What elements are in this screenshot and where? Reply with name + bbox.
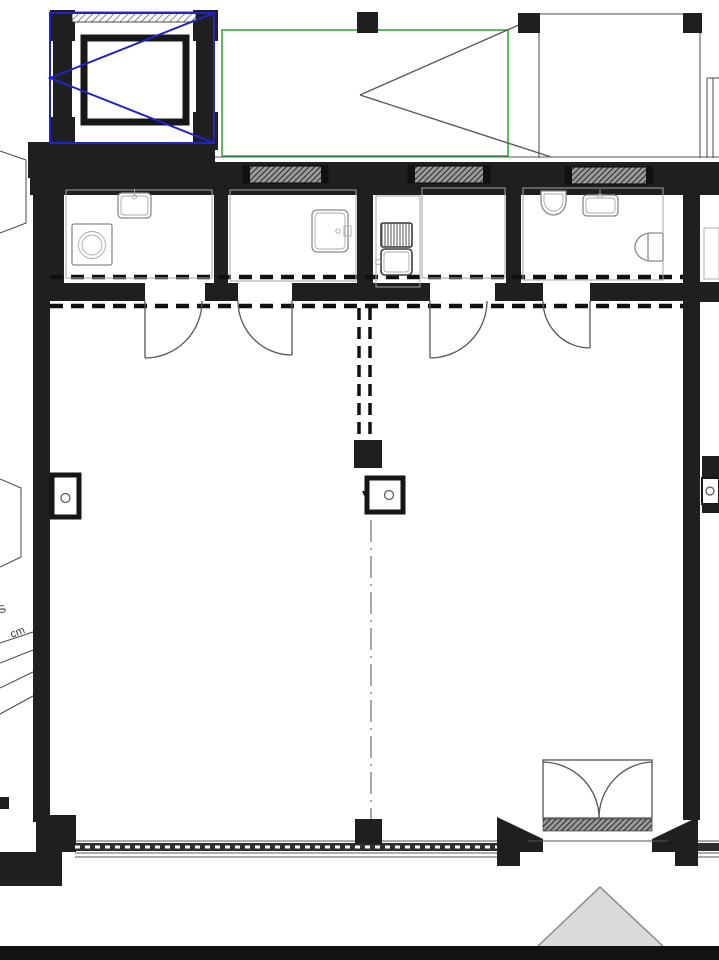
- left-wall-thickening: [50, 162, 64, 301]
- plumbing-fixtures: [72, 189, 719, 279]
- door-swing-indicator-line: [360, 95, 551, 157]
- corner-block: [0, 797, 9, 809]
- stair-label-s: S: [0, 603, 8, 617]
- wall-sink-room1: [118, 189, 151, 218]
- shaft-corner-block: [50, 10, 75, 41]
- entrance-threshold: [543, 819, 652, 831]
- partition-room1-room2: [214, 195, 228, 283]
- shaft-bottom-wall: [50, 142, 215, 162]
- wall-segment: [50, 283, 145, 301]
- door-2: [238, 301, 292, 355]
- window: [243, 166, 328, 183]
- interior-doors: [145, 301, 590, 358]
- wall-segment: [292, 283, 430, 301]
- wall-pier: [495, 283, 543, 301]
- elevator-car: [84, 38, 186, 122]
- glazing-band-right-stub: [698, 841, 719, 857]
- top-area-markers: [215, 12, 719, 158]
- wall-pier: [205, 283, 238, 301]
- toilet: [635, 233, 663, 261]
- entrance-triangle-marker: [536, 887, 665, 948]
- glazing-band: [75, 841, 497, 857]
- entrance: [497, 760, 698, 866]
- structural-column: [354, 440, 382, 468]
- exterior-column: [518, 13, 540, 33]
- floor-plan-drawing: S cm: [0, 0, 719, 960]
- cooktop: [381, 223, 412, 247]
- door-swing-indicator-line: [360, 20, 530, 95]
- corridor-wall: [50, 283, 683, 301]
- left-exterior-wall: [33, 162, 50, 822]
- adjacent-room-outline: [707, 78, 719, 158]
- urinal: [541, 191, 566, 215]
- adjacent-door-partial: [0, 479, 21, 567]
- door-1: [145, 301, 202, 358]
- floor-plan-canvas: S cm: [0, 0, 719, 960]
- adjacent-door-partial: [0, 151, 26, 233]
- washing-machine: [72, 224, 112, 265]
- post-symbol-right-edge: [702, 456, 719, 513]
- right-exterior-wall: [683, 162, 700, 820]
- room3-interior: [422, 188, 505, 278]
- exterior-column: [357, 12, 378, 33]
- adjacent-wall-stub: [700, 282, 719, 302]
- corner-block: [0, 852, 62, 886]
- elevator-shaft: [28, 10, 218, 178]
- window: [565, 167, 653, 184]
- removed-partition-dashed: [359, 308, 370, 438]
- windows: [243, 166, 653, 184]
- adjacent-fixture-partial: [704, 228, 719, 279]
- sink-room2: [312, 210, 351, 252]
- post-symbol-center: [363, 478, 403, 512]
- wall-segment: [590, 283, 683, 301]
- stair-treads: [0, 632, 33, 714]
- left-annex: S cm: [0, 151, 33, 714]
- kitchen-sink: [376, 249, 413, 275]
- post-symbol-left: [52, 475, 79, 517]
- entrance-double-door: [543, 760, 652, 818]
- exterior-column: [683, 13, 702, 33]
- viewport-bottom-bar: [0, 946, 719, 960]
- window: [408, 166, 490, 183]
- corner-block: [36, 815, 76, 852]
- stair-label-cm: cm: [9, 624, 27, 641]
- door-3: [430, 301, 487, 358]
- structural-column: [355, 819, 382, 844]
